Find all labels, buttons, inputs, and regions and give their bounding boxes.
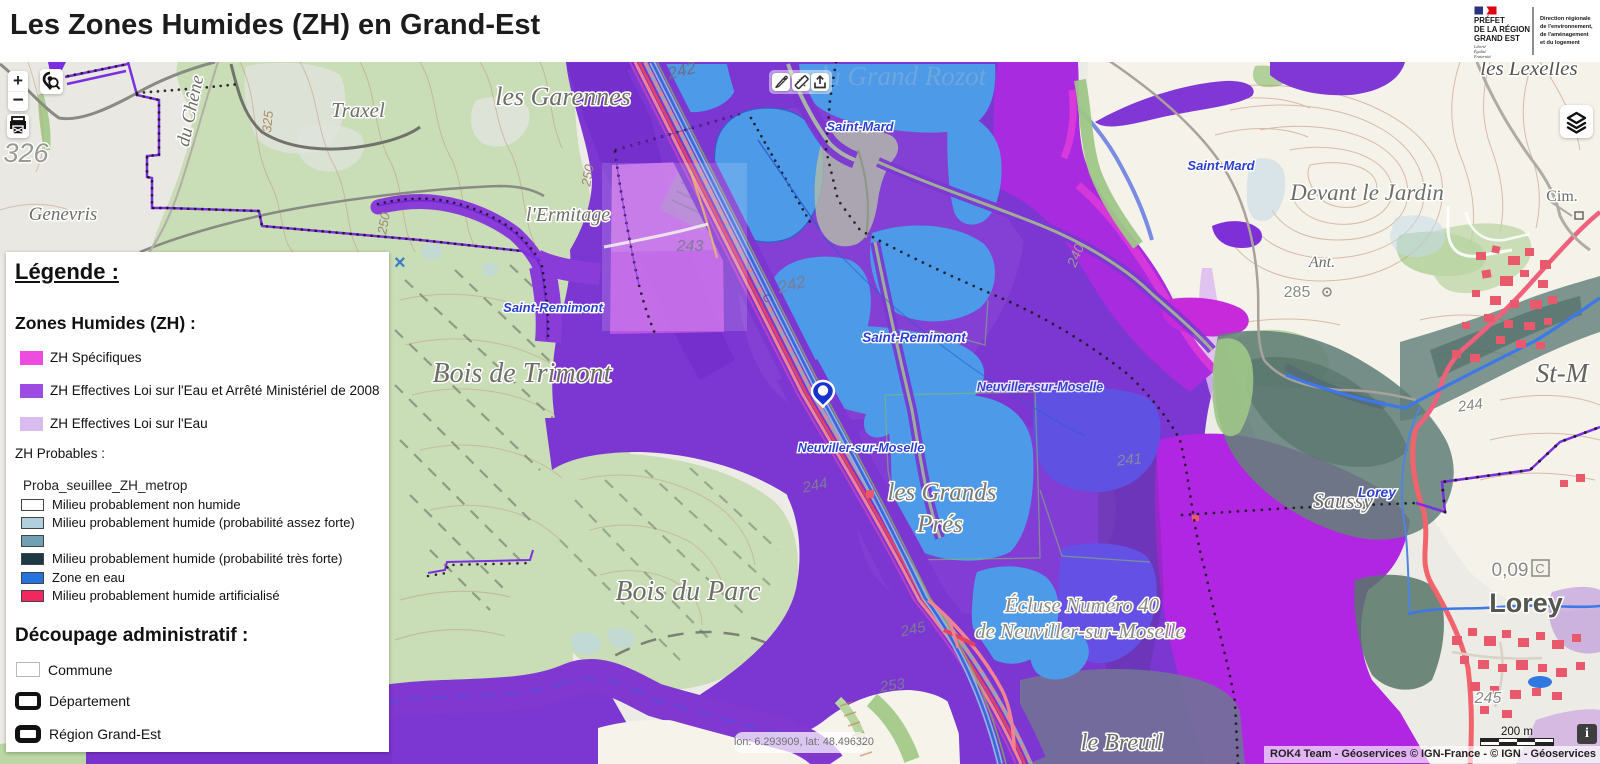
svg-text:243: 243 (676, 238, 704, 255)
svg-text:Fraternité: Fraternité (1473, 54, 1492, 58)
svg-text:C: C (1535, 561, 1544, 576)
svg-text:Saint-Mard: Saint-Mard (826, 119, 894, 134)
svg-text:Direction régionale: Direction régionale (1540, 16, 1591, 22)
svg-text:Traxel: Traxel (331, 98, 385, 122)
svg-text:285: 285 (1284, 284, 1311, 301)
svg-text:Cim.: Cim. (1546, 188, 1578, 205)
svg-text:du Grand Rozot: du Grand Rozot (814, 62, 988, 91)
svg-text:et du logement: et du logement (1540, 40, 1580, 46)
svg-text:GRAND EST: GRAND EST (1474, 34, 1520, 43)
svg-text:DE LA RÉGION: DE LA RÉGION (1474, 25, 1530, 34)
svg-text:Saint-Remimont: Saint-Remimont (862, 330, 966, 345)
svg-text:PRÉFET: PRÉFET (1474, 16, 1505, 25)
svg-text:St-M: St-M (1536, 358, 1590, 388)
svg-text:Genevris: Genevris (29, 204, 98, 225)
svg-text:de l'aménagement: de l'aménagement (1540, 32, 1589, 38)
svg-text:de Neuviller-sur-Moselle: de Neuviller-sur-Moselle (975, 619, 1185, 643)
svg-text:l'Ermitage: l'Ermitage (526, 204, 610, 226)
svg-text:le Breuil: le Breuil (1081, 730, 1164, 756)
svg-text:Neuviller-sur-Moselle: Neuviller-sur-Moselle (798, 441, 924, 455)
svg-text:Saint-Mard: Saint-Mard (1187, 158, 1255, 173)
svg-text:0,09: 0,09 (1492, 560, 1529, 581)
svg-text:326: 326 (3, 138, 49, 168)
svg-text:Prés: Prés (916, 511, 963, 538)
svg-text:les Lexelles: les Lexelles (1480, 62, 1577, 80)
svg-text:245: 245 (1474, 690, 1502, 707)
svg-text:Devant le Jardin: Devant le Jardin (1289, 180, 1444, 205)
svg-text:325: 325 (259, 109, 276, 133)
svg-text:Lorey: Lorey (1489, 588, 1563, 618)
svg-text:les Grands: les Grands (887, 479, 996, 506)
svg-text:Bois du Parc: Bois du Parc (615, 576, 761, 607)
svg-text:les Garennes: les Garennes (495, 82, 631, 111)
svg-text:Neuviller-sur-Moselle: Neuviller-sur-Moselle (977, 380, 1103, 394)
svg-text:Lorey: Lorey (1358, 484, 1397, 500)
svg-text:241: 241 (1115, 450, 1142, 469)
svg-text:Ant.: Ant. (1308, 254, 1335, 271)
svg-text:Saint-Remimont: Saint-Remimont (503, 300, 603, 315)
svg-text:Écluse Numéro 40: Écluse Numéro 40 (1004, 593, 1160, 617)
svg-text:de l'environnement,: de l'environnement, (1540, 24, 1593, 30)
svg-text:Bois de Trimont: Bois de Trimont (433, 358, 613, 389)
svg-text:244: 244 (1456, 395, 1484, 415)
